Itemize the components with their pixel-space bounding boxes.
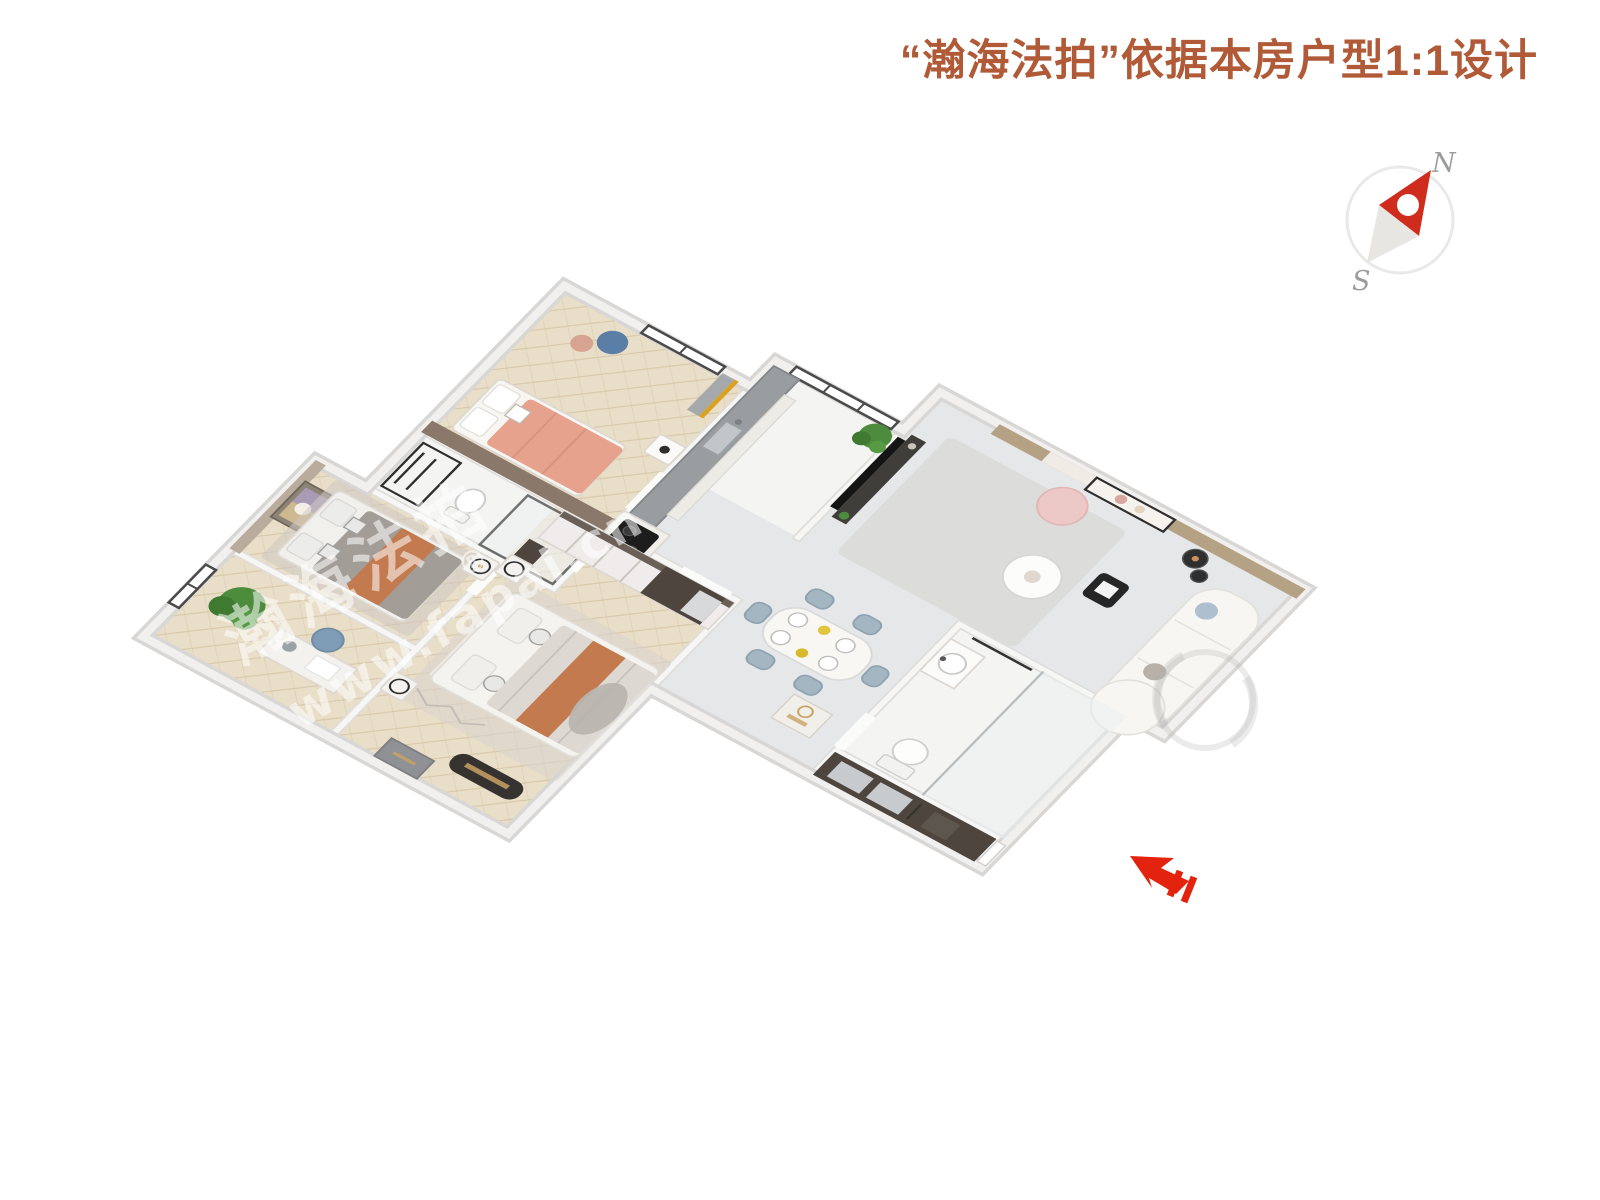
floorplan-page: 瀚海法拍 www.fapai.cn ® N S “瀚海法拍”依据本房户型1:1设… [0, 0, 1600, 1200]
compass-hub [1397, 194, 1419, 216]
page-title: “瀚海法拍”依据本房户型1:1设计 [900, 26, 1538, 88]
floorplan-render: 瀚海法拍 www.fapai.cn ® N S [0, 0, 1600, 1200]
entrance-arrow [1130, 856, 1194, 902]
compass-north-label: N [1431, 148, 1457, 179]
compass-south-label: S [1352, 266, 1371, 297]
compass: N S [1347, 148, 1457, 297]
